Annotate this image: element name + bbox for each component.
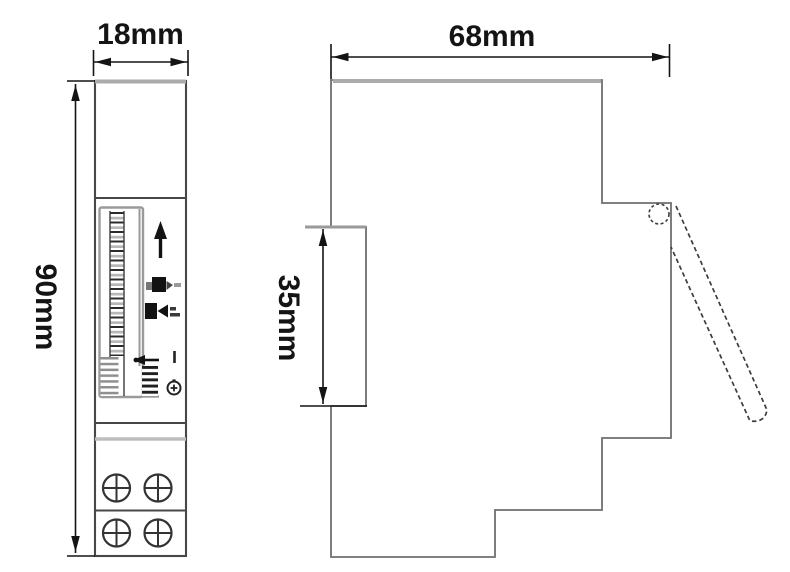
dial-window [100,208,160,398]
mode-switch-icon [145,277,181,319]
screw-icon [145,475,172,502]
dimension-drawing: 18mm 90mm 68mm 35mm [0,0,790,572]
dim-front-width-label: 18mm [97,18,184,51]
dim-side-depth: 68mm [331,20,670,79]
side-profile [331,80,671,557]
dim-front-height: 90mm [29,81,95,556]
hinge-icon [649,204,669,224]
dial-pointer-icon [133,355,159,365]
dim-din-recess: 35mm [272,227,367,406]
screw-icon [103,475,130,502]
dim-din-recess-label: 35mm [272,275,305,362]
dial-segment-strip [110,212,124,356]
dim-side-depth-label: 68mm [449,20,536,53]
clock-icon [168,379,181,394]
cover-open-flap [671,206,767,421]
screw-icon [145,520,172,547]
dim-front-height-label: 90mm [29,264,62,351]
drawing-canvas: 18mm 90mm 68mm 35mm [0,0,790,572]
rotation-arrow-icon [154,221,167,258]
side-view [331,80,767,557]
dial-rider-stack [142,366,158,396]
screw-icon [103,520,130,547]
front-view [95,81,186,556]
dial-comb-hatch [101,357,119,396]
dim-front-width: 18mm [94,18,189,76]
